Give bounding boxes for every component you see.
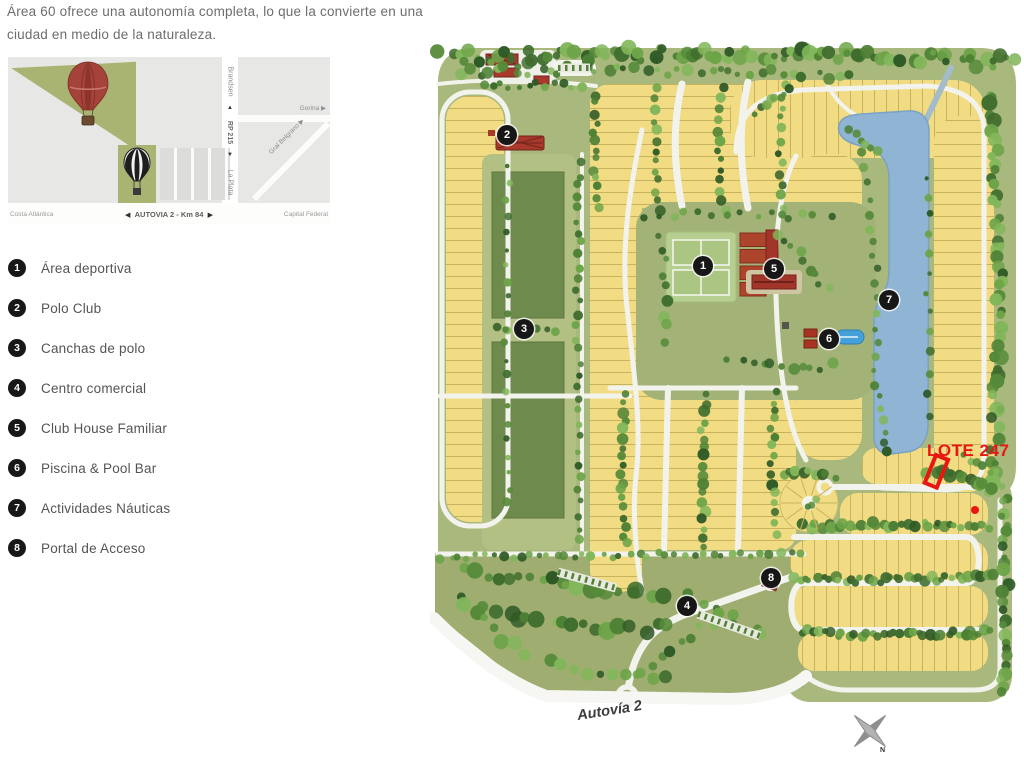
inset-autovia-band: Costa Atlántica ◀ AUTOVIA 2 - Km 84 ▶ Ca… [8,203,330,225]
inset-east-road [238,115,330,122]
legend-number-badge: 2 [8,299,26,317]
arrow-left-icon: ◀ [125,212,130,219]
intro-line2: ciudad en medio de la naturaleza. [7,27,216,42]
legend-item: 7 Actividades Náuticas [8,488,170,528]
map-marker-number: 2 [504,129,510,141]
location-inset-map: Brandsen ▲ RP 215 ▼ La Plata Gorina ▶ Gr… [8,57,330,225]
legend-number-badge: 7 [8,499,26,517]
map-marker: 3 [514,319,534,339]
map-marker-number: 8 [768,572,774,584]
map-marker-number: 7 [886,294,892,306]
legend-item: 1 Área deportiva [8,248,170,288]
map-marker-number: 6 [826,333,832,345]
legend-label: Club House Familiar [41,421,167,436]
red-dot-marker [971,506,979,514]
map-marker-number: 5 [771,263,777,275]
legend-number-badge: 5 [8,419,26,437]
map-marker: 1 [693,256,713,276]
map-marker: 2 [497,125,517,145]
striped-balloon-icon [122,147,152,197]
legend-label: Canchas de polo [41,341,145,356]
legend-item: 2 Polo Club [8,288,170,328]
intro-text: Área 60 ofrece una autonomía completa, l… [7,1,423,46]
inset-label-costa: Costa Atlántica [10,211,53,218]
site-plan-drawing: LOTE 247 Autovía 2 N [430,36,1024,768]
map-marker: 5 [764,259,784,279]
inset-destination-north: Brandsen [222,59,238,103]
inset-lot-strips [160,148,230,200]
lot-highlight-label: LOTE 247 [927,441,1009,460]
map-marker: 8 [761,568,781,588]
legend-item: 5 Club House Familiar [8,408,170,448]
legend-number-badge: 3 [8,339,26,357]
legend-number-badge: 4 [8,379,26,397]
map-marker-number: 1 [700,260,706,272]
map-marker: 7 [879,290,899,310]
map-marker: 6 [819,329,839,349]
legend-label: Piscina & Pool Bar [41,461,156,476]
site-plan-map: LOTE 247 Autovía 2 N 1 2 [430,36,1024,768]
inset-route-name: RP 215 [222,114,238,150]
map-marker-number: 3 [521,323,527,335]
map-marker: 4 [677,596,697,616]
legend-number-badge: 8 [8,539,26,557]
hot-air-balloon-icon [66,60,110,126]
legend-item: 4 Centro comercial [8,368,170,408]
legend-item: 8 Portal de Acceso [8,528,170,568]
arrow-right-icon: ▶ [208,212,213,219]
arrow-down-icon: ▼ [222,152,238,158]
legend-number-badge: 1 [8,259,26,277]
compass-rose-icon [854,715,885,746]
legend-label: Centro comercial [41,381,146,396]
legend-label: Portal de Acceso [41,541,146,556]
inset-east-road-label: Gorina ▶ [260,104,326,112]
map-marker-number: 4 [684,600,690,612]
amenities-legend: 1 Área deportiva 2 Polo Club 3 Canchas d… [8,248,170,568]
inset-label-autovia: ◀ AUTOVIA 2 - Km 84 ▶ [125,210,213,219]
legend-item: 6 Piscina & Pool Bar [8,448,170,488]
inset-destination-south: La Plata [222,161,238,203]
legend-item: 3 Canchas de polo [8,328,170,368]
legend-label: Área deportiva [41,261,132,276]
page: Área 60 ofrece una autonomía completa, l… [0,0,1024,768]
arrow-up-icon: ▲ [222,105,238,111]
compass-north-label: N [880,747,885,754]
legend-label: Polo Club [41,301,101,316]
legend-number-badge: 6 [8,459,26,477]
inset-label-capital: Capital Federal [284,211,328,218]
intro-line1: Área 60 ofrece una autonomía completa, l… [7,4,423,19]
legend-label: Actividades Náuticas [41,501,170,516]
